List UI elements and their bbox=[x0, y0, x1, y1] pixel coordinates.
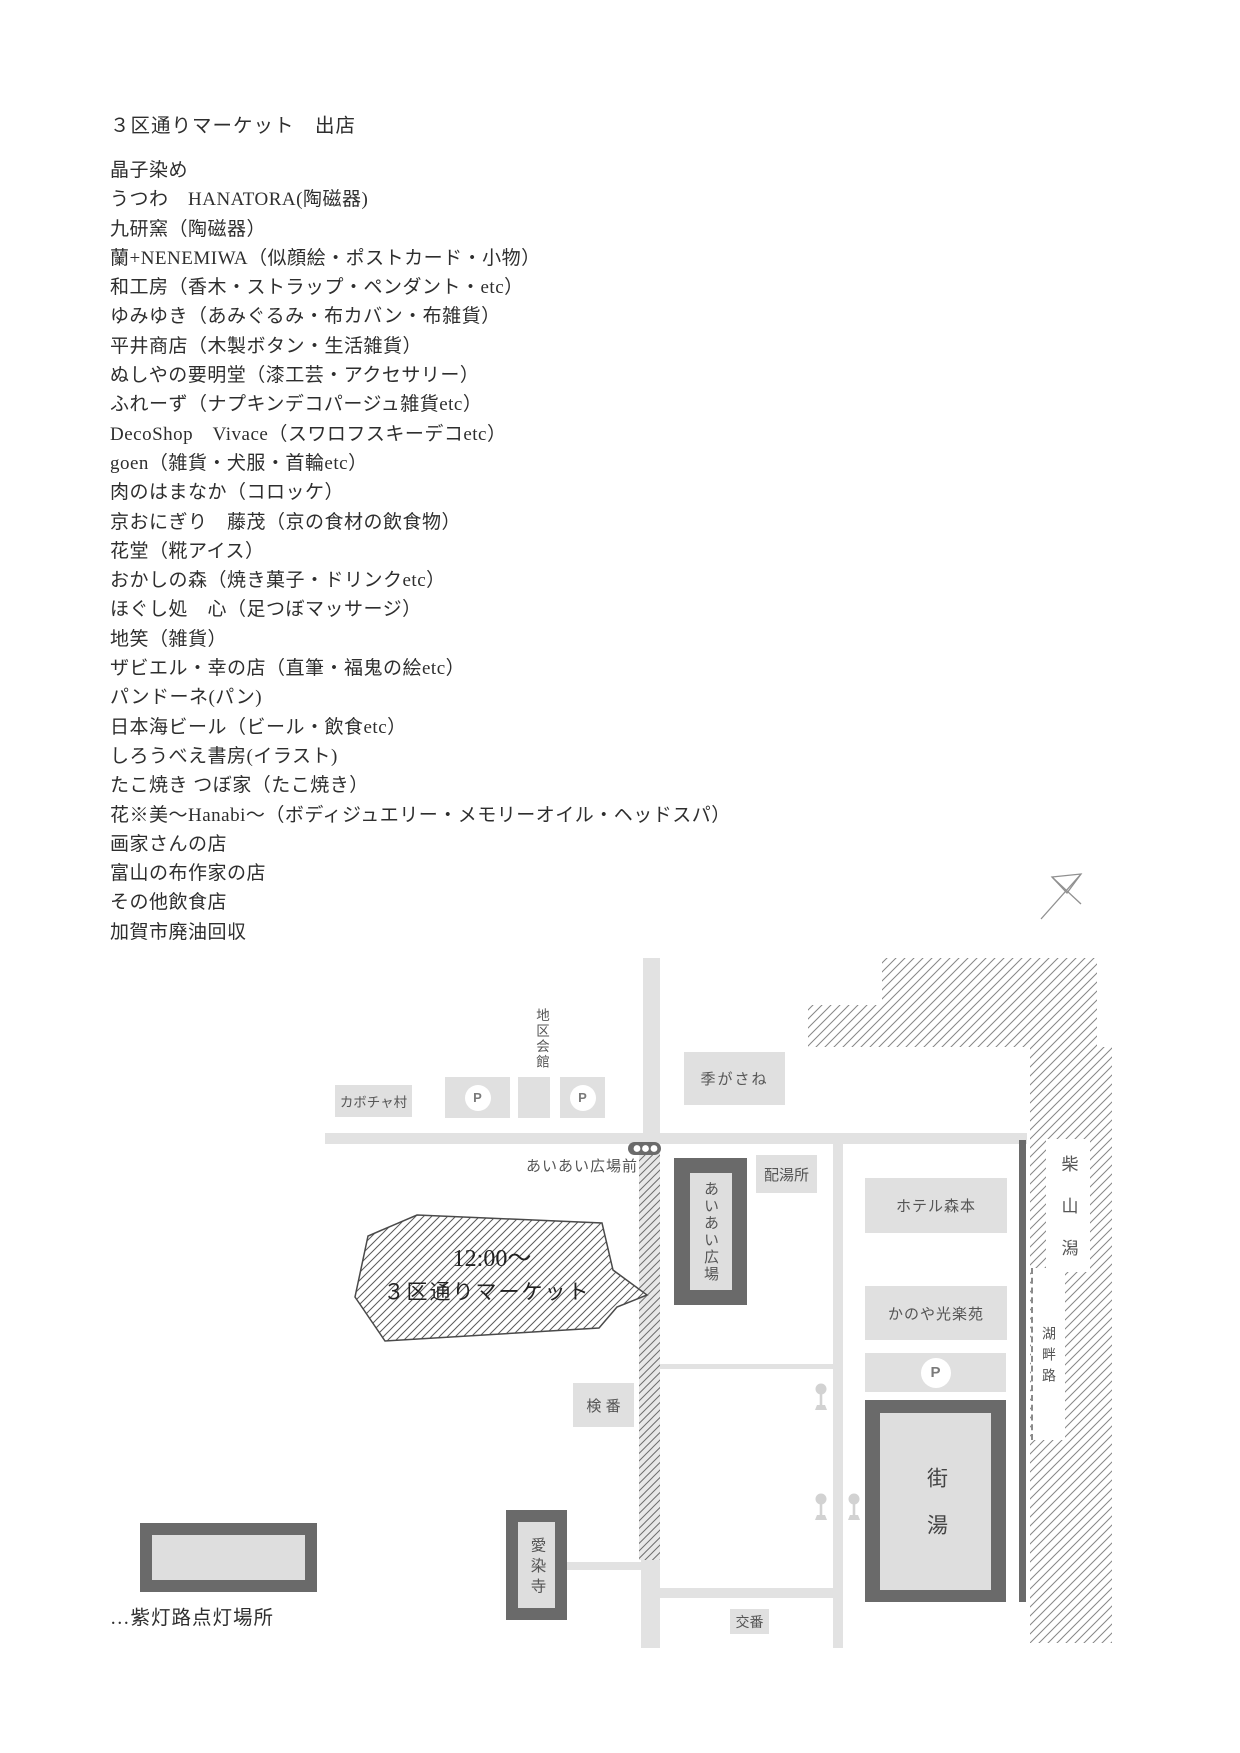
parking-strip: P bbox=[865, 1353, 1006, 1392]
label-box-haitoujo: 配湯所 bbox=[756, 1155, 817, 1193]
vendor-list-item: goen（雑貨・犬服・首輪etc） bbox=[110, 449, 731, 478]
market-street-hatch bbox=[639, 1143, 660, 1560]
label-box-kigasane: 季がさね bbox=[684, 1052, 785, 1105]
vendor-list-item: 蘭+NENEMIWA（似顔絵・ポストカード・小物） bbox=[110, 244, 731, 273]
vendor-list-item: ぬしやの要明堂（漆工芸・アクセサリー） bbox=[110, 361, 731, 390]
vendor-list-item: 肉のはまなか（コロッケ） bbox=[110, 478, 731, 507]
parking-icon: P bbox=[465, 1085, 491, 1111]
vendor-list-item: 和工房（香木・ストラップ・ペンダント・etc） bbox=[110, 273, 731, 302]
parking-icon: P bbox=[570, 1085, 596, 1111]
label-box-kanoya-kourakuen: かのや光楽苑 bbox=[865, 1286, 1007, 1340]
block-divider-line bbox=[658, 1364, 833, 1369]
legend-marker-box bbox=[140, 1523, 317, 1592]
vendor-list-item: 花※美〜Hanabi〜（ボディジュエリー・メモリーオイル・ヘッドスパ） bbox=[110, 801, 731, 830]
label-box-kenban: 検 番 bbox=[573, 1383, 634, 1427]
north-arrow-icon bbox=[1041, 874, 1081, 919]
label-chiku-kaikan: 地区会館 bbox=[521, 1005, 551, 1073]
vendor-list-item: ほぐし処 心（足つぼマッサージ） bbox=[110, 595, 731, 624]
building-label: あいあい広場 bbox=[700, 1181, 721, 1283]
vendor-list-item: 九研窯（陶磁器） bbox=[110, 215, 731, 244]
label-kohanro: 湖畔路 bbox=[1031, 1268, 1065, 1440]
vendor-list-item: 晶子染め bbox=[110, 156, 731, 185]
road-bottom-horizontal bbox=[660, 1588, 841, 1598]
vendor-list-item: 日本海ビール（ビール・飲食etc） bbox=[110, 713, 731, 742]
vendor-list-item: 平井商店（木製ボタン・生活雑貨） bbox=[110, 332, 731, 361]
page-title: ３区通りマーケット 出店 bbox=[110, 109, 356, 138]
label-aiai-hiroba-mae: あいあい広場前 bbox=[488, 1155, 638, 1176]
label-box-kabocha-village: カボチャ村 bbox=[335, 1085, 412, 1117]
street-lamp-icon bbox=[815, 1384, 827, 1411]
vendor-list-item: パンドーネ(パン) bbox=[110, 683, 731, 712]
parking-icon: P bbox=[921, 1358, 951, 1388]
vendor-list-item: ふれーず（ナプキンデコパージュ雑貨etc） bbox=[110, 390, 731, 419]
bubble-market-label: ３区通りマーケット bbox=[337, 1276, 637, 1306]
flyer-page: ３区通りマーケット 出店 晶子染め うつわ HANATORA(陶磁器) 九研窯（… bbox=[0, 0, 1240, 1753]
street-lamp-icon bbox=[848, 1494, 860, 1521]
vendor-list-item: ゆみゆき（あみぐるみ・布カバン・布雑貨） bbox=[110, 302, 731, 331]
label-box-kouban: 交番 bbox=[730, 1609, 769, 1634]
chiku-kaikan-box bbox=[518, 1077, 550, 1118]
parking-box: P bbox=[445, 1077, 510, 1118]
building-label: 愛染寺 bbox=[526, 1537, 548, 1599]
vendor-list-item: おかしの森（焼き菓子・ドリンクetc） bbox=[110, 566, 731, 595]
road-street-upper bbox=[643, 958, 660, 1133]
quay-wall bbox=[1019, 1140, 1026, 1602]
vendor-list: 晶子染め うつわ HANATORA(陶磁器) 九研窯（陶磁器） 蘭+NENEMI… bbox=[110, 156, 731, 947]
road-main-horizontal bbox=[325, 1133, 1027, 1144]
vendor-list-item: たこ焼き つぼ家（たこ焼き） bbox=[110, 771, 731, 800]
building-machiyu: 街湯 bbox=[865, 1400, 1006, 1602]
label-box-hotel-morimoto: ホテル森本 bbox=[865, 1178, 1007, 1233]
vendor-list-item: DecoShop Vivace（スワロフスキーデコetc） bbox=[110, 420, 731, 449]
parking-box: P bbox=[560, 1077, 605, 1118]
vendor-list-item: 地笑（雑貨） bbox=[110, 625, 731, 654]
vendor-list-item: 京おにぎり 藤茂（京の食材の飲食物） bbox=[110, 508, 731, 537]
vendor-list-item: 加賀市廃油回収 bbox=[110, 918, 731, 947]
vendor-list-item: その他飲食店 bbox=[110, 888, 731, 917]
building-label: 街湯 bbox=[921, 1467, 951, 1561]
legend-text: …紫灯路点灯場所 bbox=[110, 1601, 274, 1630]
lakeside-road-name: 湖畔路 bbox=[1039, 1326, 1059, 1389]
road-aizenji-connector bbox=[567, 1562, 641, 1570]
lake-name: 柴山潟 bbox=[1056, 1155, 1081, 1281]
vendor-list-item: 花堂（糀アイス） bbox=[110, 537, 731, 566]
vendor-list-item: うつわ HANATORA(陶磁器) bbox=[110, 185, 731, 214]
vendor-list-item: しろうべえ書房(イラスト) bbox=[110, 742, 731, 771]
vendor-list-item: ザビエル・幸の店（直筆・福鬼の絵etc） bbox=[110, 654, 731, 683]
vendor-list-item: 画家さんの店 bbox=[110, 830, 731, 859]
road-narrow-vertical bbox=[833, 1143, 843, 1648]
building-aiai-hiroba: あいあい広場 bbox=[674, 1158, 747, 1305]
bubble-time-label: 12:00〜 bbox=[392, 1238, 592, 1273]
street-lamp-icon bbox=[815, 1494, 827, 1521]
vendor-list-item: 富山の布作家の店 bbox=[110, 859, 731, 888]
building-aizenji: 愛染寺 bbox=[506, 1510, 567, 1620]
road-street-lower bbox=[641, 1558, 660, 1648]
label-shibayamagata: 柴山潟 bbox=[1046, 1139, 1090, 1272]
